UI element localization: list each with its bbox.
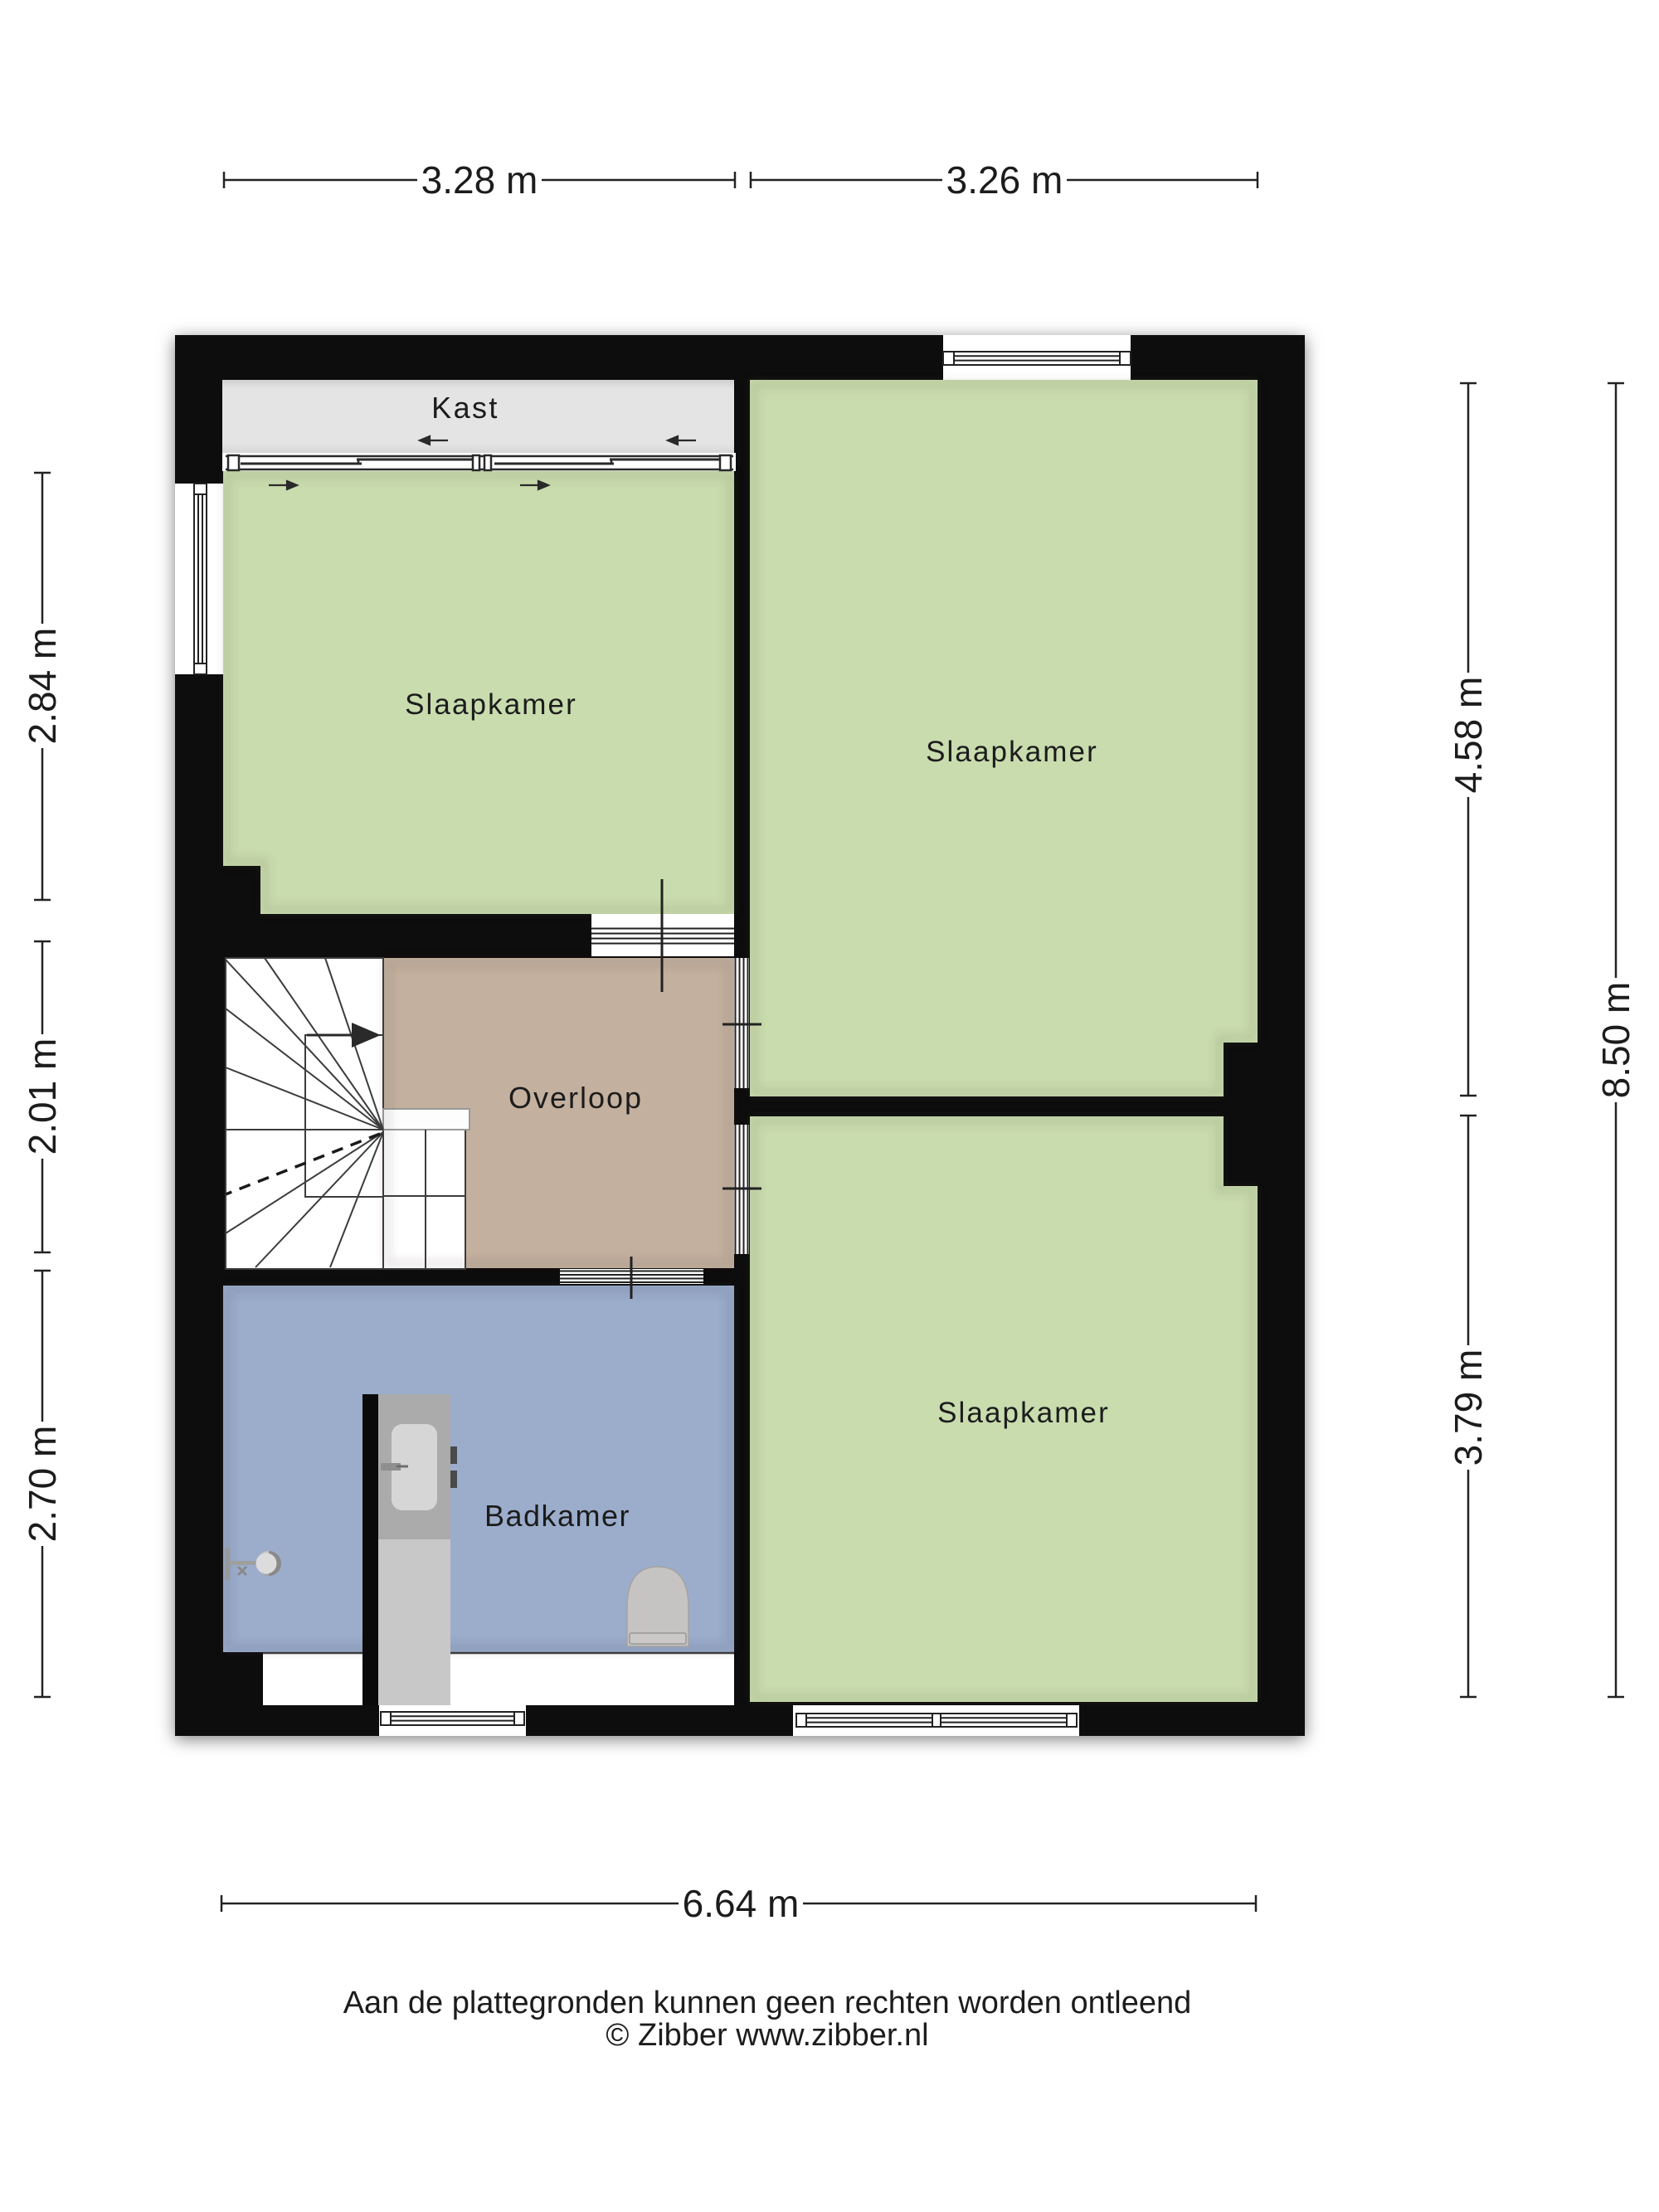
svg-text:2.70 m: 2.70 m [21,1426,64,1543]
svg-text:Overloop: Overloop [508,1081,643,1115]
svg-text:Kast: Kast [431,391,499,425]
svg-text:2.01 m: 2.01 m [21,1038,64,1155]
svg-text:3.79 m: 3.79 m [1447,1349,1490,1466]
svg-text:4.58 m: 4.58 m [1447,677,1490,794]
svg-text:© Zibber www.zibber.nl: © Zibber www.zibber.nl [606,2018,928,2053]
svg-text:3.26 m: 3.26 m [946,158,1063,202]
svg-text:Slaapkamer: Slaapkamer [405,688,577,721]
svg-text:Badkamer: Badkamer [484,1499,630,1533]
svg-text:8.50 m: 8.50 m [1594,982,1637,1099]
svg-text:3.28 m: 3.28 m [421,158,538,202]
svg-text:6.64 m: 6.64 m [683,1882,800,1925]
svg-text:Aan de plattegronden kunnen ge: Aan de plattegronden kunnen geen rechten… [343,1986,1192,2020]
svg-text:2.84 m: 2.84 m [21,628,64,745]
svg-text:Slaapkamer: Slaapkamer [937,1397,1110,1429]
svg-text:Slaapkamer: Slaapkamer [926,736,1098,768]
